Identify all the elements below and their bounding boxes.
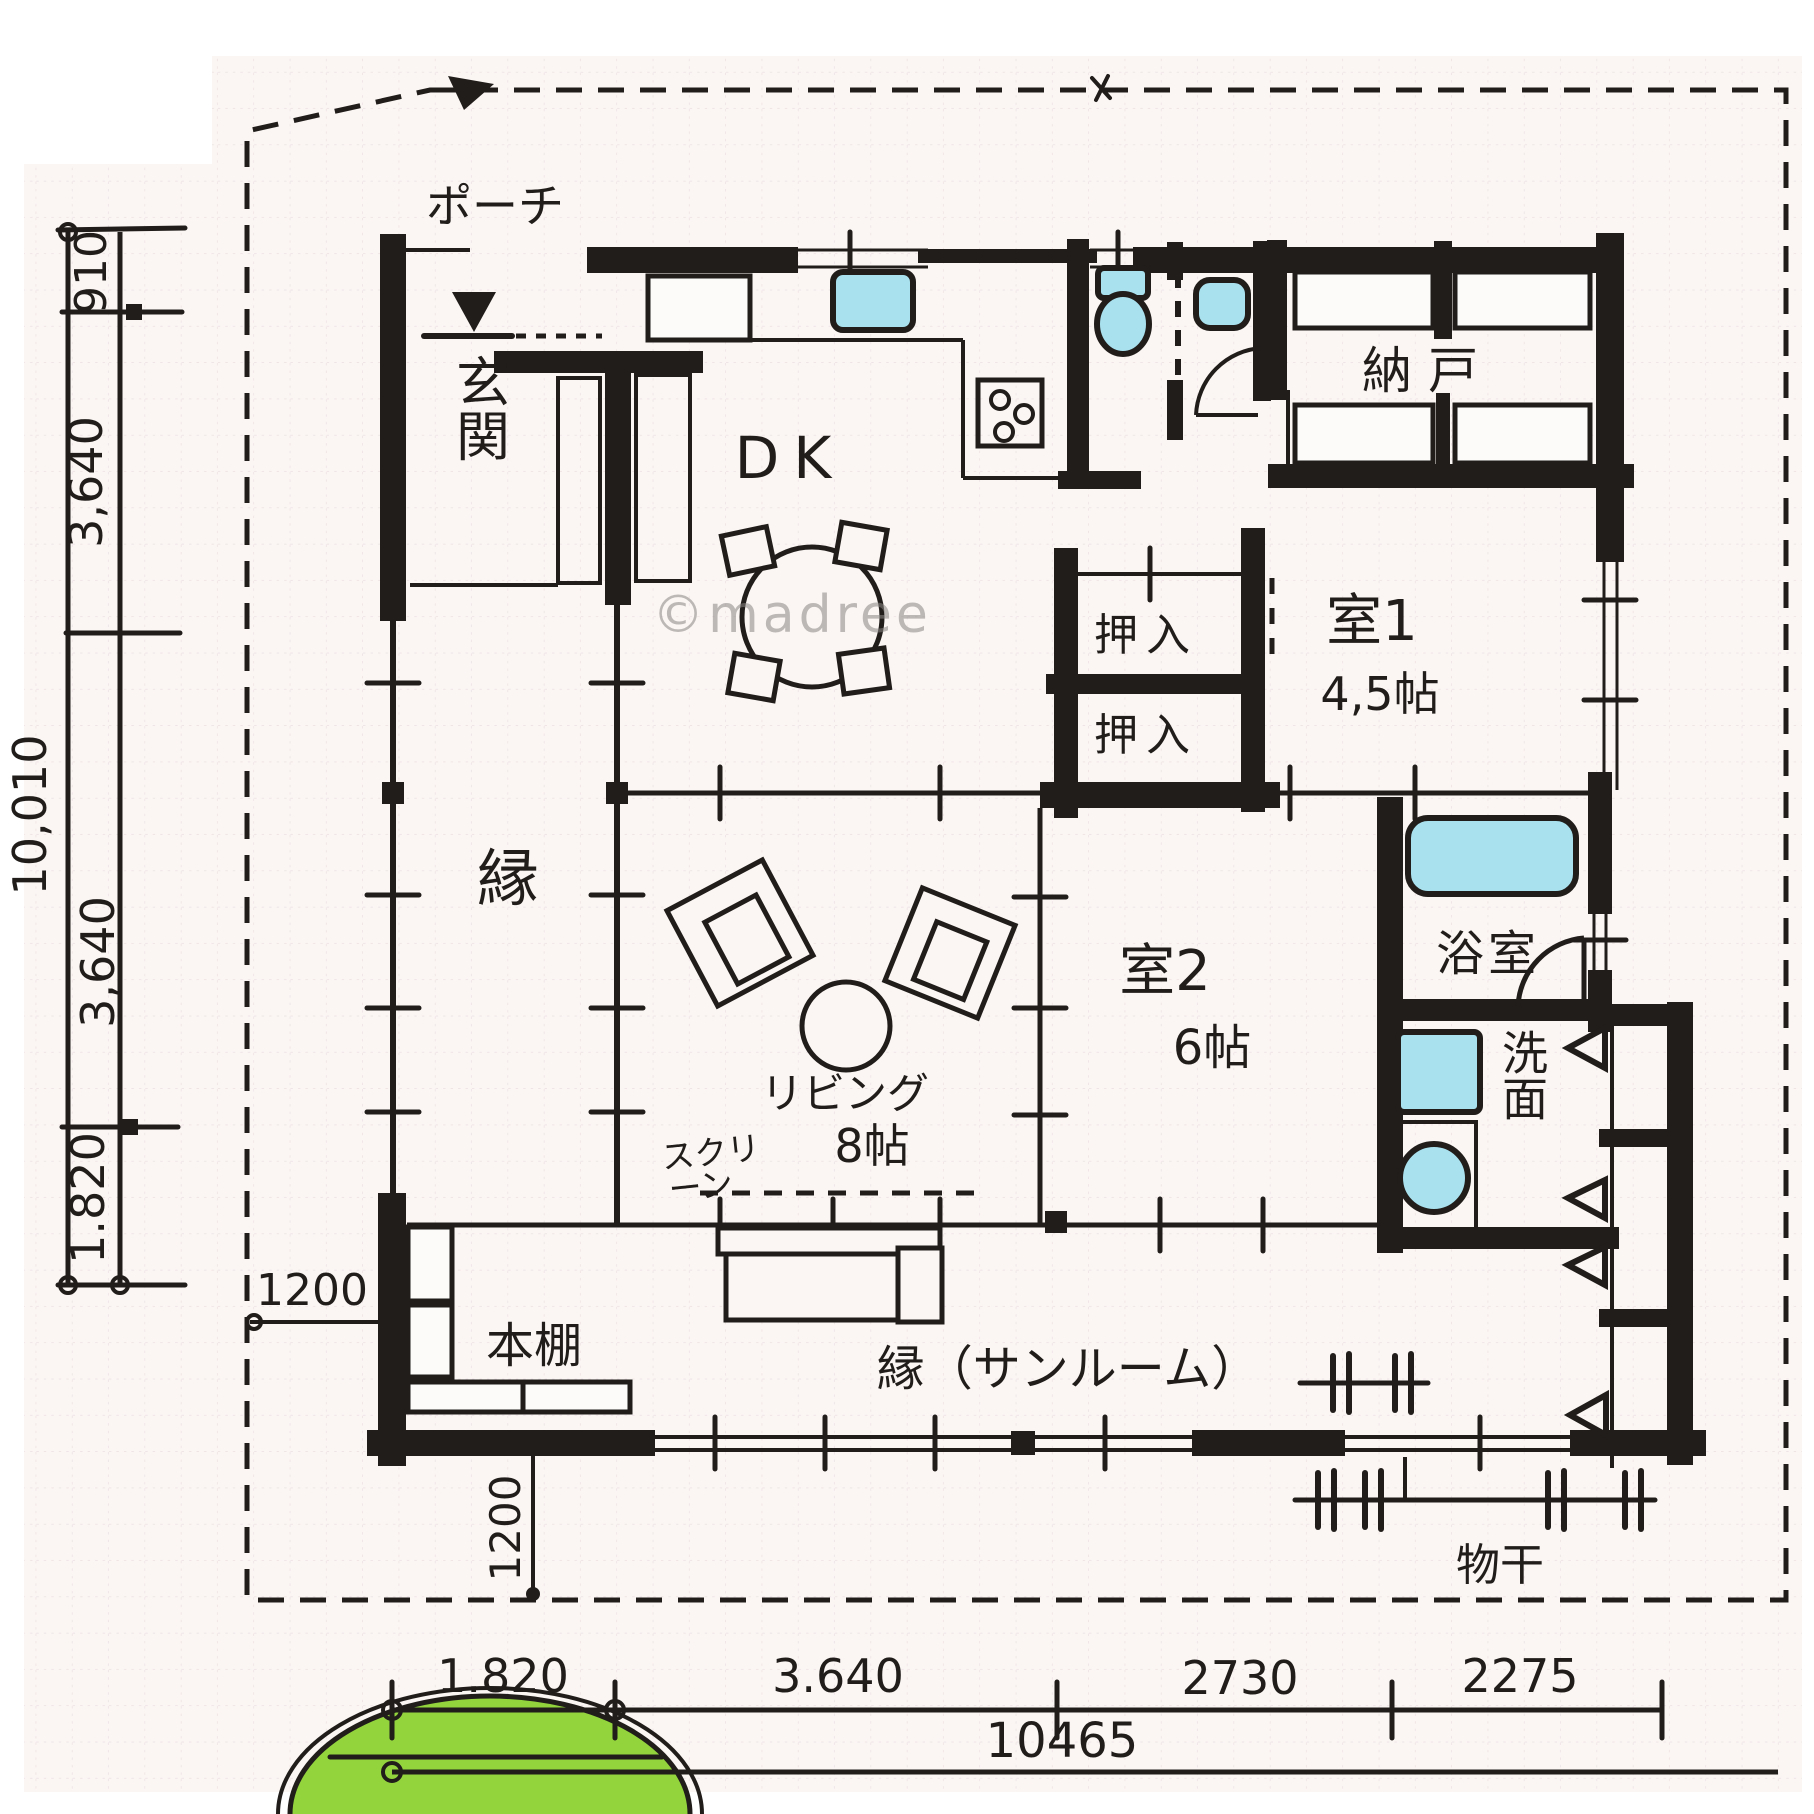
label-room2-size: 6帖 <box>1173 1020 1252 1076</box>
wash-basin <box>1196 280 1248 328</box>
toilet-bowl <box>1097 294 1149 354</box>
watermark: ©madree <box>652 585 932 645</box>
label-drying: 物干 <box>1456 1540 1544 1591</box>
dim-left-1820: 1.820 <box>61 1132 115 1264</box>
label-living: リビング <box>761 1069 929 1118</box>
label-dk: DK <box>735 424 846 492</box>
dim-bottom-total: 10465 <box>986 1713 1139 1769</box>
label-room1-size: 4,5帖 <box>1320 667 1439 721</box>
dim-bookshelf-depth: 1200 <box>481 1475 530 1582</box>
label-washroom: 洗面 <box>1495 1029 1549 1121</box>
dim-bottom-2730: 2730 <box>1181 1651 1298 1705</box>
kitchen-sink <box>833 272 913 330</box>
kitchen-cabinet <box>648 276 750 340</box>
dim-bottom-2275: 2275 <box>1461 1649 1578 1703</box>
label-porch: ポーチ <box>426 179 564 233</box>
label-storeroom: 納 戸 <box>1362 342 1478 400</box>
floorplan-sketch: 910 3,640 3,640 1.820 10,010 1.820 3.640… <box>0 0 1814 1814</box>
bathtub <box>1408 818 1576 894</box>
label-closet-lower: 押入 <box>1094 710 1198 761</box>
label-veranda: 縁 <box>477 842 539 915</box>
living-table <box>802 982 890 1070</box>
label-closet-upper: 押入 <box>1094 610 1198 661</box>
dim-bottom-3640: 3.640 <box>772 1649 904 1703</box>
washing-machine <box>1398 1032 1480 1112</box>
label-sunroom: 縁（サンルーム） <box>877 1341 1260 1397</box>
label-bath: 浴室 <box>1436 926 1540 982</box>
dim-bottom-1820: 1.820 <box>437 1649 569 1703</box>
label-living-size: 8帖 <box>834 1119 909 1173</box>
dim-bookshelf-width: 1200 <box>256 1265 368 1316</box>
label-bookshelf: 本棚 <box>486 1318 582 1374</box>
dim-left-910: 910 <box>66 230 117 314</box>
dim-left-3640b: 3,640 <box>71 896 125 1028</box>
label-room1: 室1 <box>1326 589 1418 654</box>
sofa <box>718 1228 942 1322</box>
label-screen-2: ーン <box>667 1164 735 1210</box>
dim-left-3640a: 3,640 <box>59 416 113 548</box>
label-entrance: 玄関 <box>447 354 510 462</box>
laundry-sink <box>1400 1144 1468 1212</box>
toilet-room <box>1097 268 1149 354</box>
label-room2: 室2 <box>1119 939 1211 1004</box>
dim-left-total: 10,010 <box>3 735 57 896</box>
floorplan-svg: 910 3,640 3,640 1.820 10,010 1.820 3.640… <box>0 0 1814 1814</box>
